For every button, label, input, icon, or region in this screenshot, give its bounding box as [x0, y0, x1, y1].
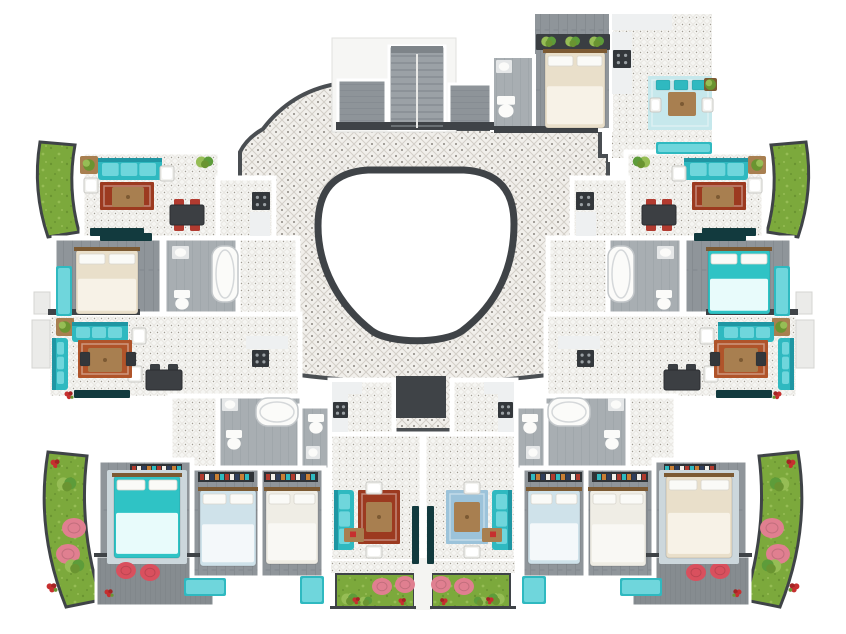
bottom-bed-e — [588, 487, 648, 566]
bookshelf — [592, 472, 648, 482]
garden-pouf — [62, 518, 86, 538]
red-flowers — [788, 583, 799, 592]
bath-sink — [608, 398, 624, 411]
armchair — [464, 546, 480, 558]
bath-sink — [172, 246, 189, 259]
bath-sink — [222, 398, 238, 411]
elevator-left — [338, 80, 386, 124]
bottom-bed-b — [198, 487, 258, 566]
dining-armchair — [650, 98, 661, 112]
dining-chair — [656, 80, 670, 90]
armchair — [160, 166, 174, 181]
terrace-pouf — [686, 564, 706, 581]
bookshelf — [264, 472, 318, 482]
balcony-bench — [300, 576, 324, 604]
sectional-sofa-top — [718, 322, 774, 342]
kitchen-counter — [250, 212, 270, 236]
bathtub — [548, 398, 590, 426]
wing-hall-floor — [236, 238, 298, 318]
armchair — [700, 328, 714, 344]
mid-unit-hall-floor — [170, 396, 218, 468]
stove — [252, 350, 269, 367]
floor-plan-canvas — [0, 0, 846, 634]
bathtub — [212, 246, 238, 302]
armchair — [366, 546, 382, 558]
balcony-bench — [656, 142, 712, 154]
kitchen-counter — [612, 14, 672, 30]
bookshelf — [198, 472, 254, 482]
dining-armchair — [702, 98, 713, 112]
coffee-table — [702, 187, 734, 207]
balcony-tile-strip — [430, 560, 516, 574]
elevator-right — [449, 84, 491, 126]
stove — [576, 192, 594, 210]
potted-plant — [704, 78, 717, 91]
balconette — [32, 320, 50, 368]
wing-bed-left — [74, 247, 140, 314]
side-table-with-plant — [56, 318, 74, 336]
floor-plan-page — [0, 0, 846, 634]
coffee-table — [366, 502, 392, 532]
garden-pouf — [760, 518, 784, 538]
lounge-chair — [80, 352, 90, 366]
bath-sink — [526, 446, 540, 459]
bottom-bed-d — [526, 487, 582, 564]
sectional-sofa-side — [52, 338, 68, 390]
side-table-with-plant — [748, 156, 766, 174]
stove — [252, 192, 270, 210]
north-unit-bed — [543, 49, 607, 128]
writing-desk — [344, 528, 364, 542]
mid-unit-hall-floor — [628, 396, 676, 468]
balcony-bench — [184, 578, 226, 596]
bedroom-planter — [536, 34, 610, 50]
balcony-pouf — [372, 578, 392, 595]
wardrobe-strip — [694, 233, 746, 241]
terrace-pouf — [116, 562, 136, 579]
tv-console — [74, 390, 130, 398]
kitchen-counter — [332, 382, 362, 394]
tv-console — [412, 506, 419, 564]
balcony-bench — [522, 576, 546, 604]
living-sofa — [684, 158, 748, 180]
bathtub — [608, 246, 634, 302]
armchair — [84, 178, 98, 193]
armchair — [748, 178, 762, 193]
corner-garden-terrace — [37, 142, 79, 237]
bookshelf — [528, 472, 582, 482]
coffee-table — [88, 348, 122, 372]
bottom-bed-a — [107, 470, 187, 564]
stove — [613, 50, 631, 68]
bathtub — [256, 398, 298, 426]
kitchen-counter — [484, 382, 514, 394]
coffee-table — [454, 502, 480, 532]
terrace-pouf — [140, 564, 160, 581]
writing-desk — [482, 528, 502, 542]
terrace-pouf — [710, 562, 730, 579]
corner-garden-terrace — [767, 142, 809, 237]
balconette — [796, 292, 812, 314]
bath-sink — [306, 446, 320, 459]
bottom-bed-c — [264, 487, 320, 564]
balcony-divider — [414, 558, 432, 610]
balcony-pouf — [395, 576, 415, 593]
wing-bed-right — [706, 247, 772, 314]
dining-chair — [674, 80, 688, 90]
armchair — [366, 482, 382, 494]
sectional-sofa-side — [778, 338, 794, 390]
balconette — [796, 320, 814, 368]
red-flowers — [47, 583, 58, 592]
stove — [577, 350, 594, 367]
dining-chair — [692, 80, 706, 90]
stove — [498, 402, 513, 418]
armchair — [464, 482, 480, 494]
tv-console — [716, 390, 772, 398]
coffee-table — [724, 348, 758, 372]
dining-table — [668, 92, 696, 116]
balcony-pouf — [454, 578, 474, 595]
wardrobe-strip — [100, 233, 152, 241]
kitchen-counter — [576, 212, 596, 236]
balcony-edge-wall — [330, 606, 416, 609]
armchair — [132, 328, 146, 344]
lounge-chair — [126, 352, 136, 366]
kitchen-counter — [246, 336, 288, 349]
living-sofa — [98, 158, 162, 180]
side-table-with-plant — [772, 318, 790, 336]
armchair — [672, 166, 686, 181]
lounge-chair — [756, 352, 766, 366]
balcony-edge-wall — [430, 606, 516, 609]
bath-sink — [496, 60, 512, 73]
service-shaft — [396, 376, 446, 418]
lounge-chair — [710, 352, 720, 366]
balcony-pouf — [431, 576, 451, 593]
tv-console — [427, 506, 434, 564]
coffee-table — [112, 187, 144, 207]
bath-sink — [657, 246, 674, 259]
bottom-bed-f — [659, 470, 739, 564]
balconette — [34, 292, 50, 314]
wing-hall-floor — [548, 238, 610, 318]
kitchen-counter — [558, 336, 600, 349]
balcony-tile-strip — [330, 560, 416, 574]
balcony-bench — [620, 578, 662, 596]
side-table-with-plant — [80, 156, 98, 174]
bedroom-bench — [56, 266, 72, 316]
sectional-sofa-top — [72, 322, 128, 342]
stove — [333, 402, 348, 418]
bedroom-bench — [774, 266, 790, 316]
